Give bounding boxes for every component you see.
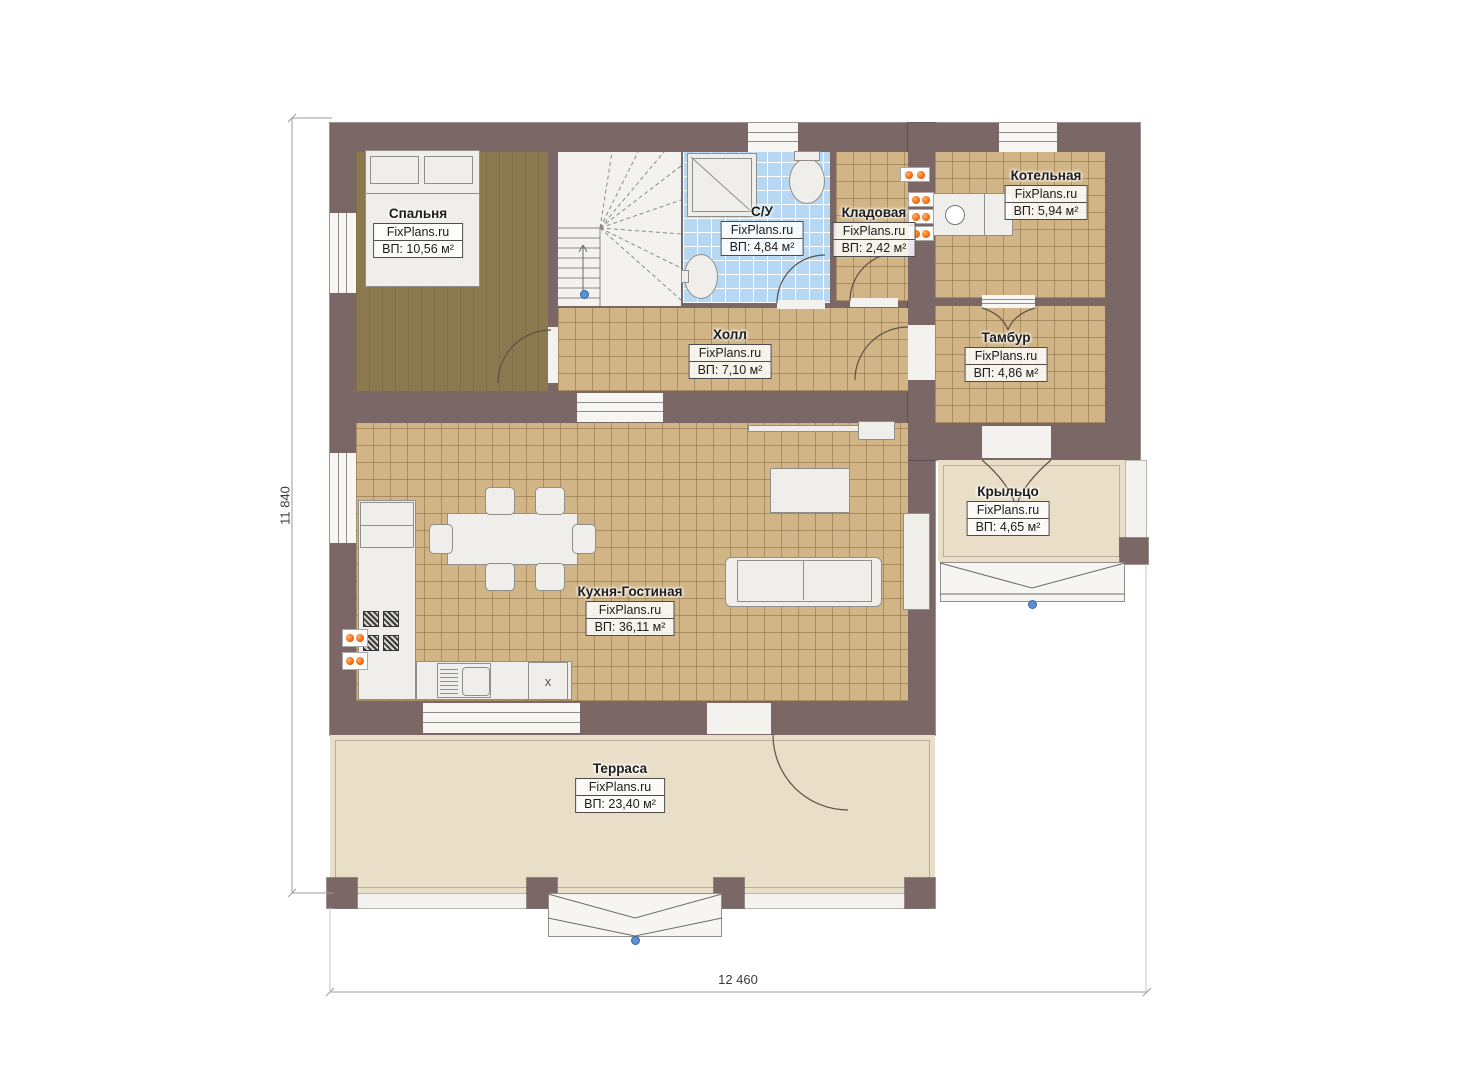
room-label-bedroom: Спальня FixPlans.ru ВП: 10,56 м² <box>373 206 463 258</box>
room-area: ВП: 5,94 м² <box>1006 203 1087 219</box>
window-boiler-top <box>999 123 1057 152</box>
room-area: ВП: 36,11 м² <box>587 619 674 635</box>
terrace-pillar <box>905 878 935 908</box>
floor-terrace <box>330 735 935 893</box>
radiator-icon <box>900 167 930 182</box>
bathroom-sink-tap <box>681 270 689 283</box>
boiler-dial <box>945 205 965 225</box>
brand-text: FixPlans.ru <box>1006 186 1087 203</box>
door-opening-kitchen-terrace <box>707 703 771 734</box>
boiler-divider <box>984 194 985 235</box>
stove-burner-icon <box>383 635 399 651</box>
brand-text: FixPlans.ru <box>374 224 462 241</box>
stove-burner-icon <box>363 611 379 627</box>
brand-text: FixPlans.ru <box>587 602 674 619</box>
pillow <box>424 156 473 184</box>
radiator-icon <box>342 652 368 670</box>
brand-text: FixPlans.ru <box>690 345 771 362</box>
fridge <box>360 502 414 548</box>
coffee-table <box>770 468 850 513</box>
room-area: ВП: 7,10 м² <box>690 362 771 378</box>
sofa-seat <box>737 560 872 602</box>
porch-steps <box>940 562 1125 602</box>
room-area: ВП: 10,56 м² <box>374 241 462 257</box>
dining-table <box>447 513 578 565</box>
window-kitchen-terrace <box>423 703 580 733</box>
door-opening-bedroom <box>548 327 558 383</box>
room-label-hall: Холл FixPlans.ru ВП: 7,10 м² <box>689 327 772 379</box>
chair <box>535 487 565 515</box>
pillow <box>370 156 419 184</box>
door-opening-entrance <box>982 426 1051 458</box>
room-area: ВП: 4,86 м² <box>966 365 1047 381</box>
room-label-boiler: Котельная FixPlans.ru ВП: 5,94 м² <box>1005 168 1088 220</box>
floor-plan-canvas: х <box>0 0 1474 1080</box>
room-name: Терраса <box>575 761 665 776</box>
window-kitchen-left <box>330 453 356 543</box>
kitchen-sink <box>437 663 491 698</box>
terrace-steps <box>548 893 722 937</box>
blanket-line <box>366 193 479 194</box>
room-label-vestibule: Тамбур FixPlans.ru ВП: 4,86 м² <box>965 330 1048 382</box>
window-bathroom-top <box>748 123 798 152</box>
terrace-pillar <box>327 878 357 908</box>
reference-point-icon <box>1028 600 1037 609</box>
reference-point-icon <box>631 936 640 945</box>
room-name: Котельная <box>1005 168 1088 183</box>
room-area: ВП: 4,65 м² <box>968 519 1049 535</box>
toilet-cistern <box>794 151 820 161</box>
room-name: Кладовая <box>833 205 916 220</box>
tv-console <box>903 513 930 610</box>
sink-drainer <box>440 667 458 694</box>
sofa-divider <box>803 560 804 600</box>
radiator-icon <box>342 629 368 647</box>
bathroom-sink <box>684 254 718 299</box>
room-name: Кухня-Гостиная <box>578 584 683 599</box>
door-opening-bathroom <box>777 300 825 309</box>
fridge-divider <box>361 525 413 526</box>
room-area: ВП: 4,84 м² <box>722 239 803 255</box>
room-area: ВП: 23,40 м² <box>576 796 664 812</box>
passage-hall-kitchen <box>577 393 663 422</box>
boiler-unit <box>933 193 1013 236</box>
room-area: ВП: 2,42 м² <box>834 240 915 256</box>
brand-text: FixPlans.ru <box>576 779 664 796</box>
room-label-bathroom: С/У FixPlans.ru ВП: 4,84 м² <box>721 204 804 256</box>
brand-text: FixPlans.ru <box>834 223 915 240</box>
chair <box>485 563 515 591</box>
sofa <box>725 557 882 607</box>
brand-text: FixPlans.ru <box>968 502 1049 519</box>
room-name: Холл <box>689 327 772 342</box>
room-label-porch: Крыльцо FixPlans.ru ВП: 4,65 м² <box>967 484 1050 536</box>
room-label-terrace: Терраса FixPlans.ru ВП: 23,40 м² <box>575 761 665 813</box>
stove <box>363 611 401 655</box>
reference-point-icon <box>580 290 589 299</box>
room-label-storage: Кладовая FixPlans.ru ВП: 2,42 м² <box>833 205 916 257</box>
chair <box>485 487 515 515</box>
door-opening-hall-vestibule <box>908 325 935 380</box>
wall-console <box>748 425 868 432</box>
electric-panel <box>858 421 895 440</box>
toilet <box>789 158 825 204</box>
chair <box>572 524 596 554</box>
door-opening-storage <box>850 298 898 307</box>
room-label-kitchen: Кухня-Гостиная FixPlans.ru ВП: 36,11 м² <box>578 584 683 636</box>
door-opening-boiler-vestibule <box>982 295 1035 308</box>
dimension-label-height: 11 840 <box>278 474 293 538</box>
stove-burner-icon <box>383 611 399 627</box>
chair <box>429 524 453 554</box>
sink-basin <box>462 667 490 696</box>
floor-stairs <box>558 152 681 306</box>
room-name: Крыльцо <box>967 484 1050 499</box>
window-bedroom-left <box>330 213 356 293</box>
chair <box>535 563 565 591</box>
brand-text: FixPlans.ru <box>722 222 803 239</box>
room-name: Спальня <box>373 206 463 221</box>
room-name: Тамбур <box>965 330 1048 345</box>
porch-pillar <box>1120 538 1148 564</box>
brand-text: FixPlans.ru <box>966 348 1047 365</box>
dimension-label-width: 12 460 <box>706 972 770 987</box>
appliance-x: х <box>528 662 568 700</box>
room-name: С/У <box>721 204 804 219</box>
